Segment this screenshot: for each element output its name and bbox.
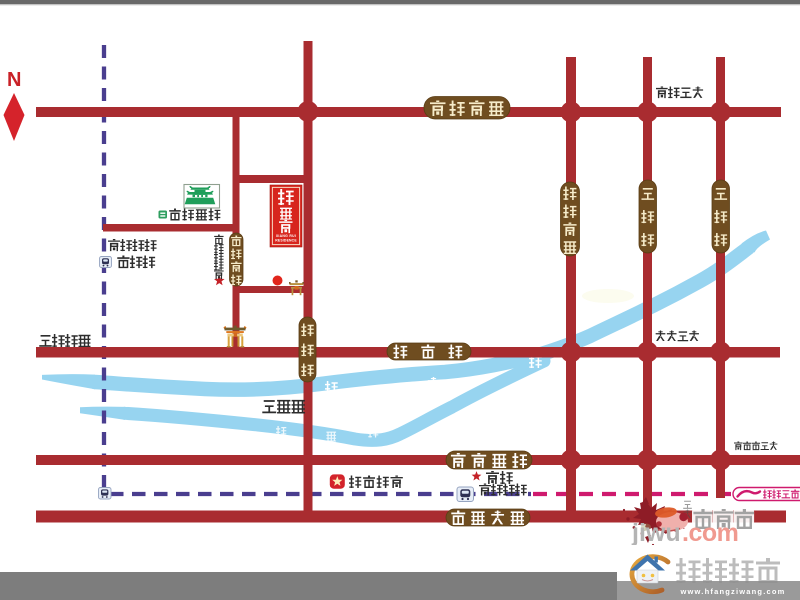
svg-text:www.hfangziwang.com: www.hfangziwang.com [679, 587, 785, 596]
svg-text:jiwu: jiwu [631, 519, 681, 547]
svg-text:RESIDENCE: RESIDENCE [275, 238, 297, 242]
svg-text:.com: .com [682, 519, 738, 547]
svg-text:N: N [7, 69, 21, 91]
svg-text:XIANG RUI: XIANG RUI [276, 234, 296, 238]
